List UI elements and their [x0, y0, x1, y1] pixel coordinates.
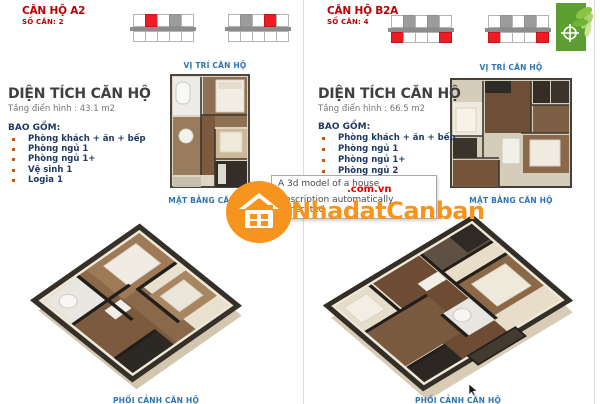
watermark-brand: NhadatCanban — [291, 197, 485, 225]
watermark-suffix: .com.vn — [347, 184, 391, 195]
bullet-icon — [322, 148, 325, 151]
unit-title: CĂN HỘ A2 — [22, 5, 85, 17]
bullet-icon — [12, 179, 15, 182]
includes-label: BAO GỒM: — [318, 122, 370, 132]
list-item-label: Vệ sinh 1 — [28, 166, 72, 175]
bullet-icon — [322, 137, 325, 140]
building-position-grid — [133, 14, 193, 42]
unit-count: SỐ CĂN: 4 — [327, 18, 369, 26]
bullet-icon — [12, 158, 15, 161]
area-title: DIỆN TÍCH CĂN HỘ — [318, 86, 461, 102]
bullet-icon — [12, 138, 15, 141]
includes-label: BAO GỒM: — [8, 123, 60, 133]
position-label: VỊ TRÍ CĂN HỘ — [461, 63, 561, 72]
list-item-label: Phòng khách + ăn + bếp — [28, 135, 146, 144]
floor-plan-image — [450, 78, 572, 190]
bullet-icon — [322, 159, 325, 162]
bullet-icon — [322, 170, 325, 173]
building-position-grid — [228, 14, 288, 42]
mouse-cursor — [468, 384, 478, 396]
grid-cell — [181, 31, 194, 42]
unit-title: CĂN HỘ B2A — [327, 5, 398, 17]
list-item-label: Phòng ngủ 1 — [28, 145, 88, 154]
list-item-label: Phòng ngủ 1 — [338, 145, 398, 154]
unit-count: SỐ CĂN: 2 — [22, 18, 64, 26]
area-title: DIỆN TÍCH CĂN HỘ — [8, 86, 151, 102]
bullet-icon — [12, 148, 15, 151]
grid-cell — [276, 14, 289, 27]
perspective-label: PHỐI CẢNH CĂN HỘ — [106, 396, 206, 404]
position-label: VỊ TRÍ CĂN HỘ — [165, 61, 265, 70]
area-subtitle: Tầng điển hình : 66.5 m2 — [318, 104, 425, 114]
grid-cell — [276, 31, 289, 42]
list-item-label: Phòng ngủ 1+ — [338, 156, 405, 165]
list-item-label: Phòng khách + ăn + bếp — [338, 134, 456, 143]
house-icon — [225, 181, 293, 245]
building-position-grid — [391, 15, 451, 43]
grid-cell — [181, 14, 194, 27]
apartment-3d-image — [312, 206, 588, 404]
list-item-label: Phòng ngủ 1+ — [28, 155, 95, 164]
list-item-label: Logia 1 — [28, 176, 63, 185]
area-subtitle: Tầng điển hình : 43.1 m2 — [8, 104, 115, 114]
right-edge-line — [594, 0, 595, 404]
floor-plan-image — [170, 74, 250, 192]
list-item: Logia 1 — [10, 176, 146, 186]
bullet-icon — [12, 169, 15, 172]
leaf-logo — [556, 3, 593, 51]
grid-cell — [536, 15, 549, 28]
grid-cell — [439, 15, 452, 28]
building-position-grid — [488, 15, 548, 43]
presentation-slide: CĂN HỘ A2 SỐ CĂN: 2 VỊ TRÍ CĂN HỘ MẶT BẰ… — [0, 0, 600, 404]
grid-cell — [439, 32, 452, 43]
grid-cell — [536, 32, 549, 43]
perspective-label: PHỐI CẢNH CĂN HỘ — [408, 396, 508, 404]
includes-list: Phòng khách + ăn + bếpPhòng ngủ 1Phòng n… — [10, 135, 146, 186]
